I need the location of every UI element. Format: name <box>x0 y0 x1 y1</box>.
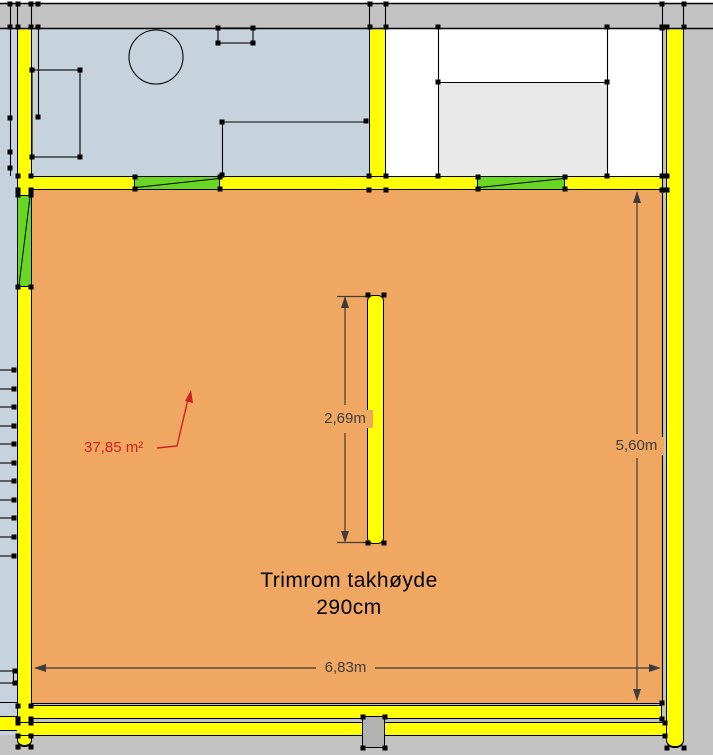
room-name-line2[interactable]: 290cm <box>229 596 469 620</box>
area-label[interactable]: 37,85 m² <box>84 439 143 456</box>
dimension-label-interior-wall[interactable]: 2,69m <box>317 410 373 428</box>
plan-linework <box>0 0 713 755</box>
dimension-label-room-depth[interactable]: 5,60m <box>609 437 664 455</box>
dimension-label-room-width[interactable]: 6,83m <box>318 659 373 677</box>
left-rectangle-fixture <box>32 70 80 157</box>
vent-rectangle <box>218 28 253 43</box>
selection-handles[interactable] <box>8 2 687 751</box>
blue-room-fixtures[interactable] <box>32 28 253 157</box>
circle-fixture <box>129 30 183 84</box>
floor-plan-canvas[interactable]: 2,69m 5,60m 6,83m 37,85 m² Trimrom takhø… <box>0 0 713 755</box>
room-name-line1[interactable]: Trimrom takhøyde <box>229 569 469 593</box>
window-diagonals <box>19 179 564 286</box>
area-leader-arrow <box>157 390 193 448</box>
